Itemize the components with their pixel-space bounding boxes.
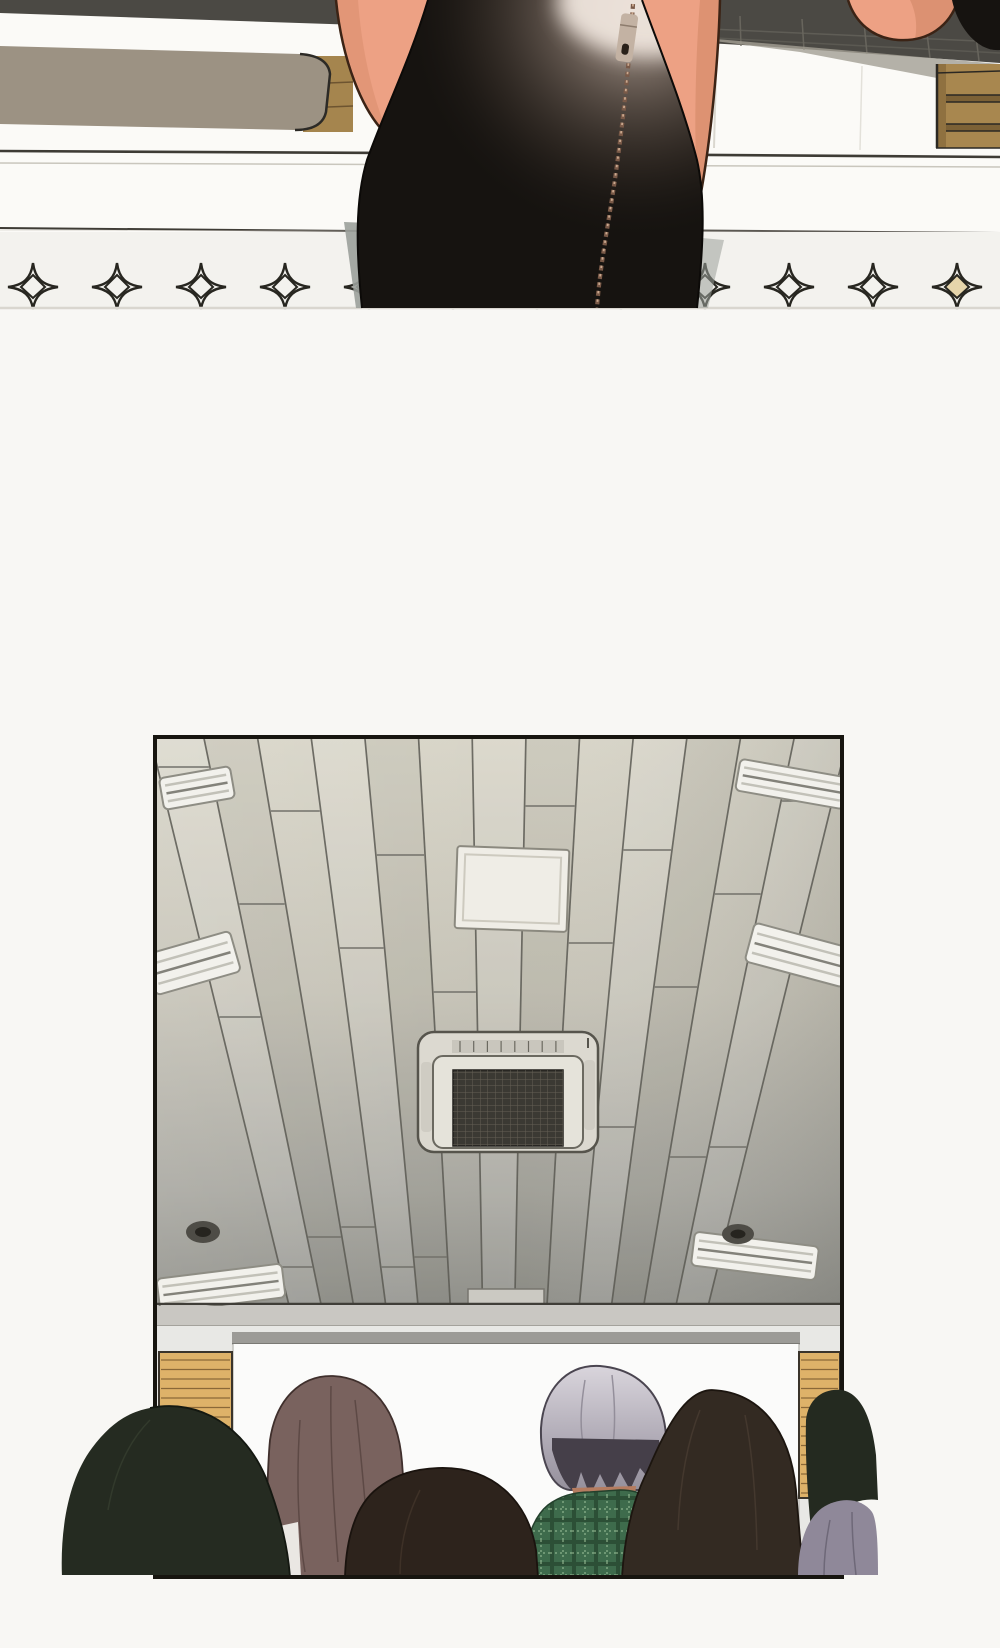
ac-flap-right xyxy=(584,1060,595,1130)
ac-top-vent xyxy=(452,1040,564,1053)
comic-page xyxy=(0,0,1000,1648)
ceiling-access-panel xyxy=(455,846,570,932)
ceiling-speaker-left xyxy=(186,1221,220,1243)
wall-molding xyxy=(155,1306,842,1326)
head-right-edge xyxy=(798,1390,878,1577)
panel-bottom-classroom xyxy=(62,737,878,1577)
drawer-cabinet-right xyxy=(936,64,1000,148)
ceiling-center-tab xyxy=(468,1289,544,1304)
panel-top-skirt-closeup xyxy=(0,0,1000,320)
shelf-board-left xyxy=(0,46,330,130)
ceiling-speaker-right xyxy=(722,1224,754,1244)
screen-top-bar xyxy=(232,1332,800,1344)
ac-cassette-unit xyxy=(418,1032,598,1152)
ac-flap-left xyxy=(421,1062,432,1132)
